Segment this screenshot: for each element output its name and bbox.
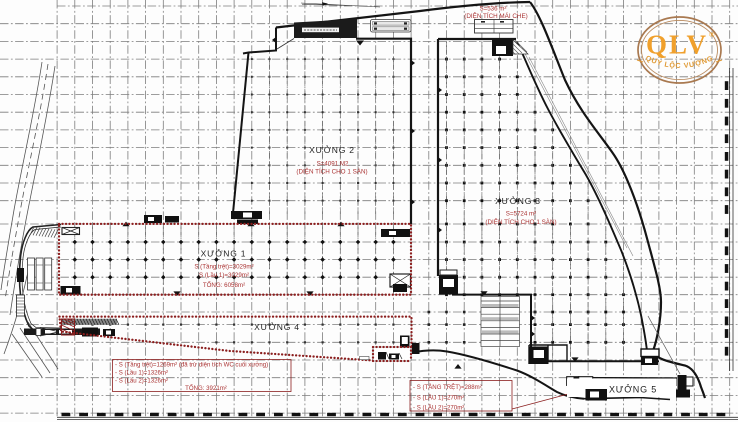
svg-text:XƯỞNG 2: XƯỞNG 2 (309, 144, 355, 155)
svg-text:XƯỞNG 1: XƯỞNG 1 (201, 248, 247, 259)
svg-text:®: ® (709, 30, 715, 39)
svg-text:S=536 m²: S=536 m² (480, 6, 507, 13)
svg-text:S (Tầng trệt)=3029m²: S (Tầng trệt)=3029m² (194, 264, 253, 271)
svg-text:XƯỞNG 4: XƯỞNG 4 (254, 321, 300, 332)
svg-text:- S (TẦNG TRỆT)=288m²: - S (TẦNG TRỆT)=288m² (413, 383, 482, 391)
svg-text:(DIỆN TÍCH CHO 1 SÀN): (DIỆN TÍCH CHO 1 SÀN) (485, 217, 556, 226)
svg-text:S (Lầu 1)=3029m²: S (Lầu 1)=3029m² (199, 272, 249, 279)
svg-text:- S (Lầu 1)=1326m²: - S (Lầu 1)=1326m² (115, 370, 168, 377)
svg-text:XƯỞNG 5: XƯỞNG 5 (609, 384, 657, 395)
svg-text:- S (Tầng trệt)=1269m² (đã trừ: - S (Tầng trệt)=1269m² (đã trừ diện tích… (115, 362, 268, 369)
svg-text:QLV: QLV (646, 30, 708, 60)
svg-text:(DIỆN TÍCH MÁI CHE): (DIỆN TÍCH MÁI CHE) (464, 11, 528, 20)
svg-text:- S (LẦU 2)=270m²: - S (LẦU 2)=270m² (413, 405, 464, 412)
svg-text:- S (Lầu 2)=1326m²: - S (Lầu 2)=1326m² (115, 378, 168, 385)
svg-text:- S (LẦU 1)=270m²: - S (LẦU 1)=270m² (413, 395, 464, 402)
svg-text:XƯỞNG 3: XƯỞNG 3 (495, 195, 541, 206)
svg-text:S=5724 m²: S=5724 m² (506, 211, 536, 218)
svg-text:(DIỆN TÍCH CHO 1 SÀN): (DIỆN TÍCH CHO 1 SÀN) (296, 167, 367, 176)
svg-text:S=4091 M2: S=4091 M2 (317, 161, 349, 168)
svg-text:TỔNG: 6058m²: TỔNG: 6058m² (203, 282, 245, 289)
svg-text:TỔNG: 3921m²: TỔNG: 3921m² (185, 385, 227, 392)
